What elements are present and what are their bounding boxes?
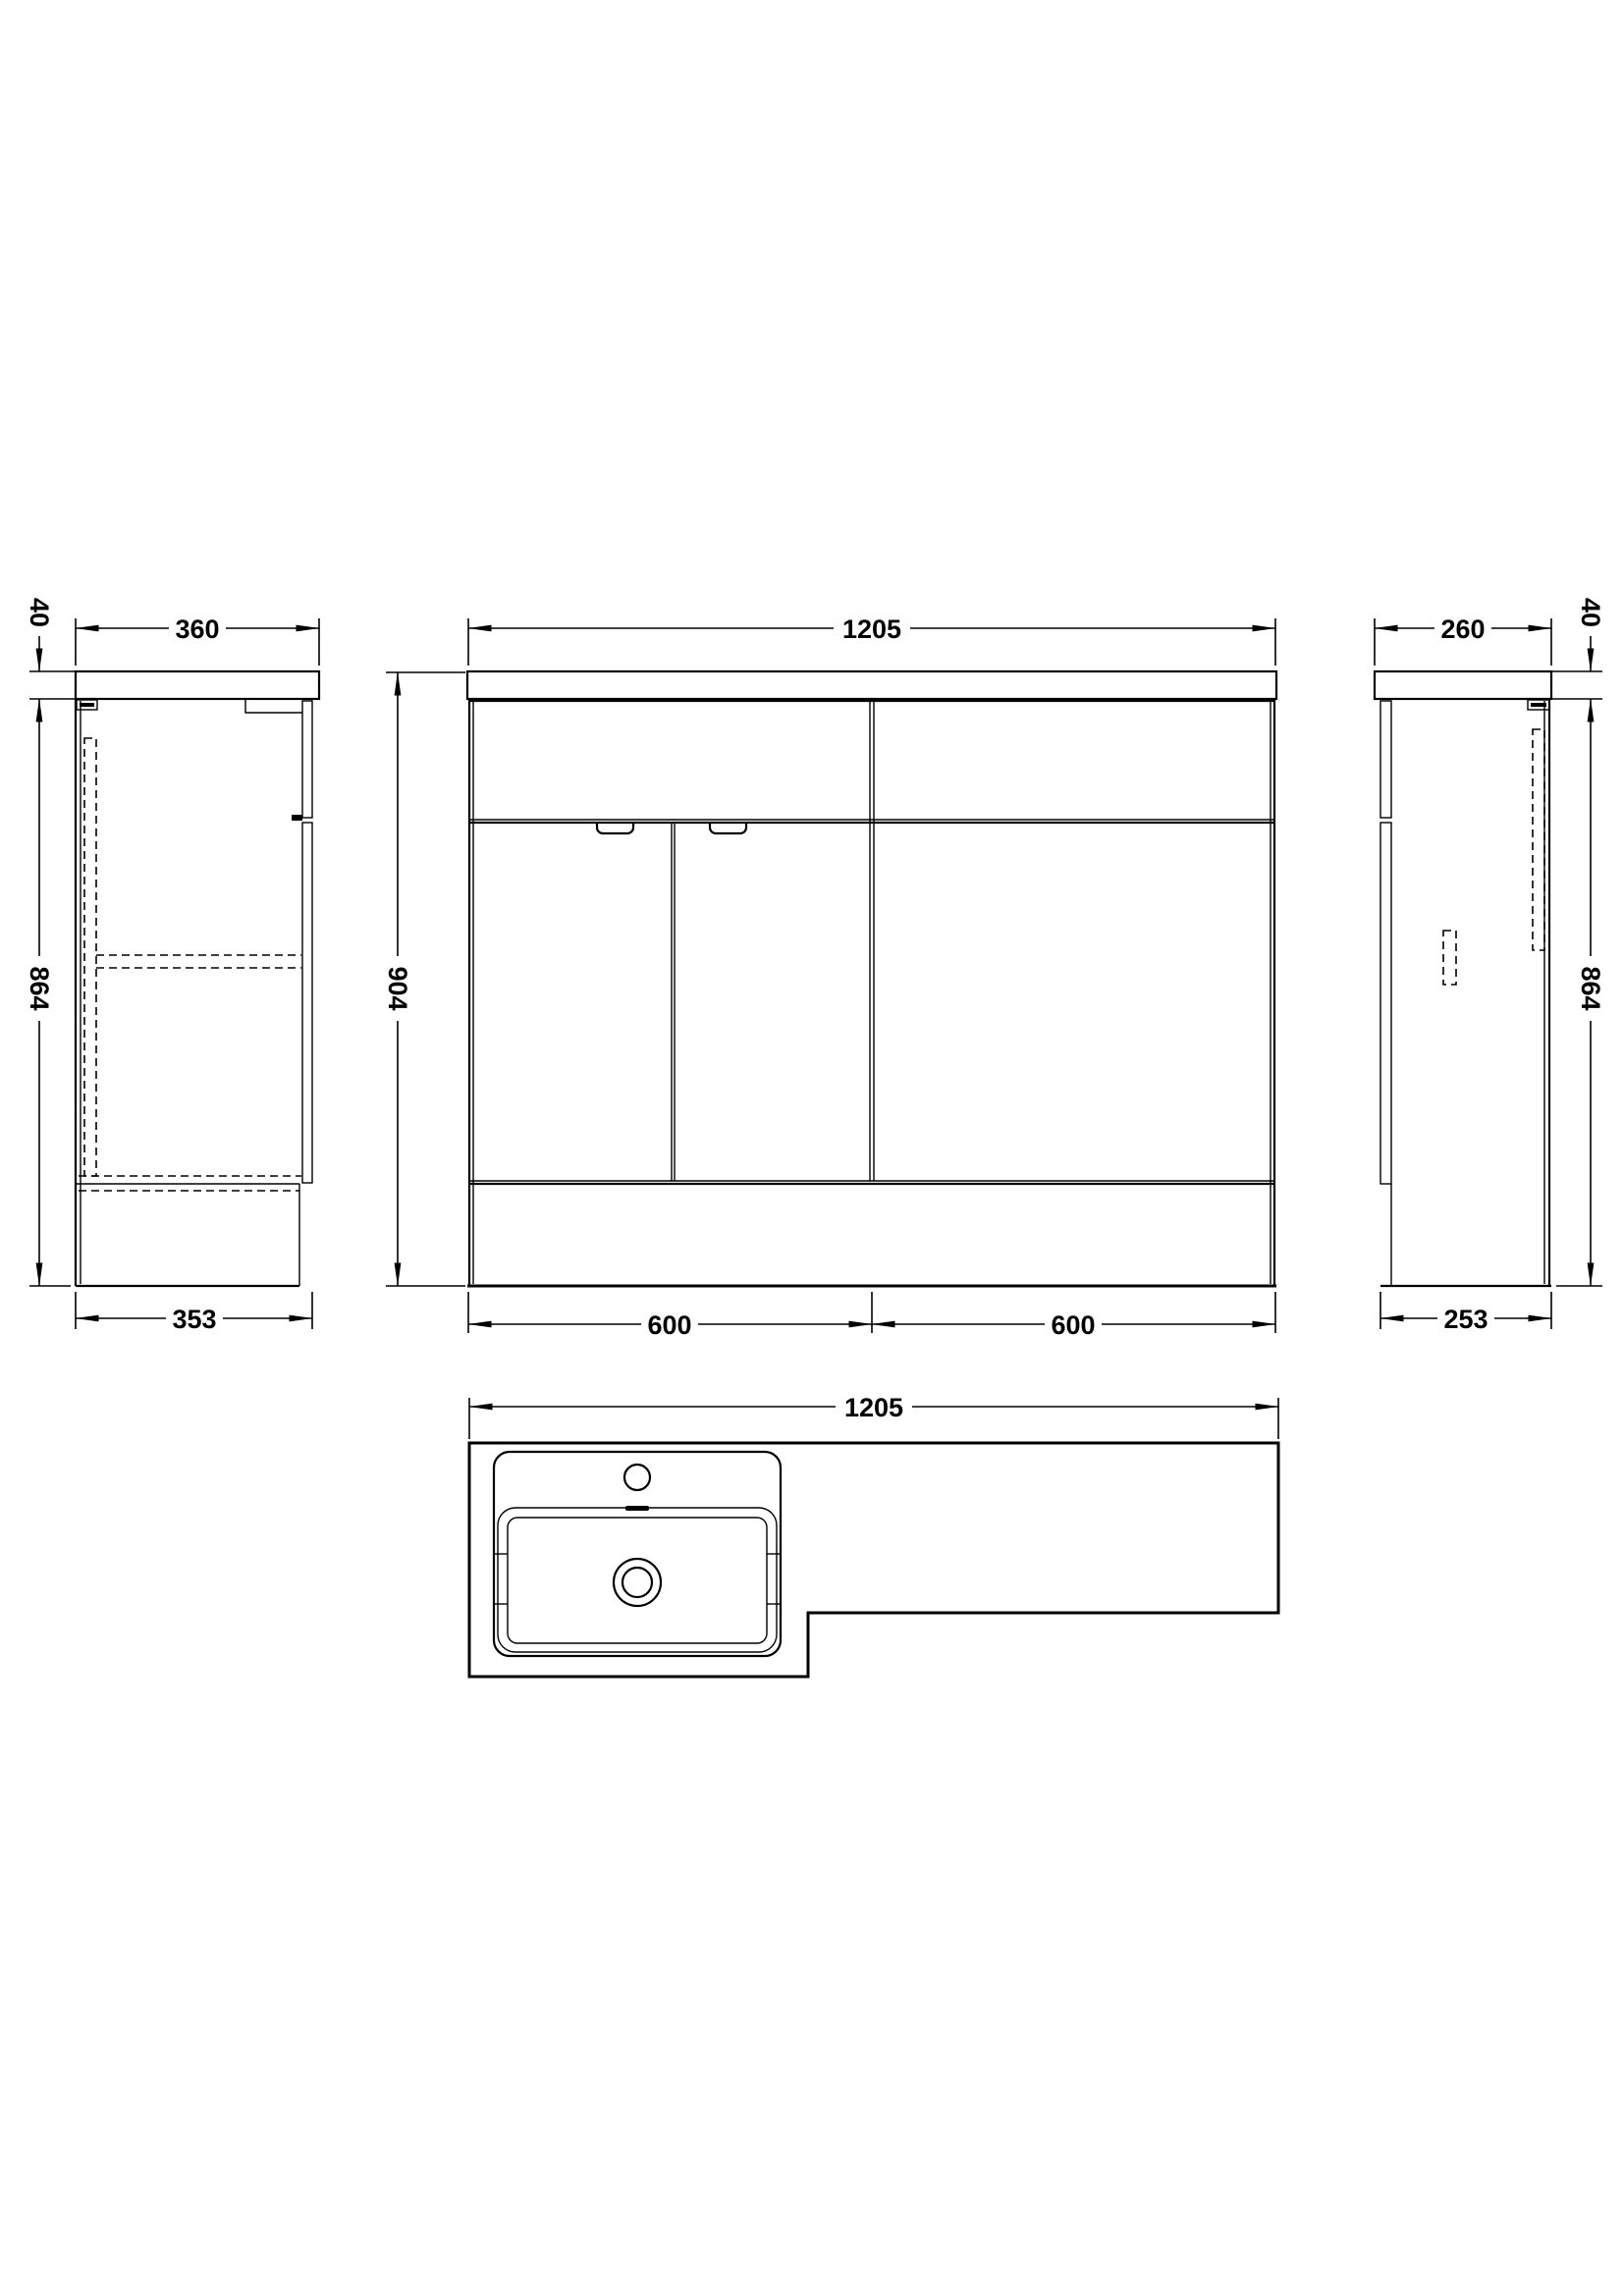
plan-tap-hole <box>624 1465 650 1490</box>
right-panel-edge <box>1380 701 1391 818</box>
dim-label-front-right-span: 600 <box>1051 1310 1095 1340</box>
plan-basin-outer <box>494 1452 781 1656</box>
technical-drawing: 360 40 864 353 <box>0 0 1623 2296</box>
left-hidden-back-panel <box>84 738 96 1176</box>
left-wall-bracket-pin <box>80 703 94 707</box>
front-left-door-handle <box>597 823 633 833</box>
right-hidden-fixing <box>1443 931 1456 985</box>
right-worktop <box>1375 671 1551 699</box>
dim-label-right-height: 864 <box>1576 966 1605 1010</box>
left-front-rail <box>245 700 302 713</box>
left-drawer-edge <box>302 701 312 818</box>
plan-overflow-slot <box>625 1506 649 1511</box>
dim-label-front-width: 1205 <box>842 614 901 644</box>
dim-label-front-left-span: 600 <box>647 1310 691 1340</box>
plan-waste-inner <box>622 1568 652 1597</box>
right-door-edge <box>1380 823 1391 1184</box>
left-worktop <box>76 671 319 699</box>
dim-label-plan-width: 1205 <box>844 1393 903 1422</box>
plan-view: 1205 <box>469 1393 1278 1677</box>
right-wall-bracket-pin <box>1531 703 1546 707</box>
front-worktop <box>467 671 1276 699</box>
drawing-canvas: 360 40 864 353 <box>0 0 1623 2296</box>
right-hidden-cistern <box>1533 729 1544 950</box>
left-handle-profile <box>292 815 302 821</box>
right-side-view <box>1375 671 1551 1286</box>
front-dimensions: 1205 904 600 600 <box>383 614 1275 1340</box>
front-right-door-handle <box>710 823 746 833</box>
plan-worktop-outline <box>469 1443 1278 1677</box>
plan-waste-outer <box>614 1559 661 1606</box>
left-side-view <box>76 671 319 1286</box>
dim-label-left-height: 864 <box>25 966 54 1010</box>
right-side-dimensions: 260 40 864 253 <box>1375 598 1605 1334</box>
front-view <box>467 671 1276 1286</box>
dim-label-right-thickness: 40 <box>1576 598 1605 627</box>
dim-label-left-depth: 353 <box>172 1305 216 1334</box>
plan-basin-rim <box>498 1508 777 1652</box>
dim-label-front-height: 904 <box>383 966 412 1010</box>
plan-basin-bowl <box>508 1518 767 1643</box>
left-side-dimensions: 360 40 864 353 <box>25 598 319 1334</box>
dim-label-left-width: 360 <box>175 614 219 644</box>
dim-label-left-thickness: 40 <box>25 598 54 627</box>
left-door-edge <box>302 823 312 1183</box>
dim-label-right-width: 260 <box>1440 614 1485 644</box>
dim-label-right-depth: 253 <box>1443 1305 1488 1334</box>
